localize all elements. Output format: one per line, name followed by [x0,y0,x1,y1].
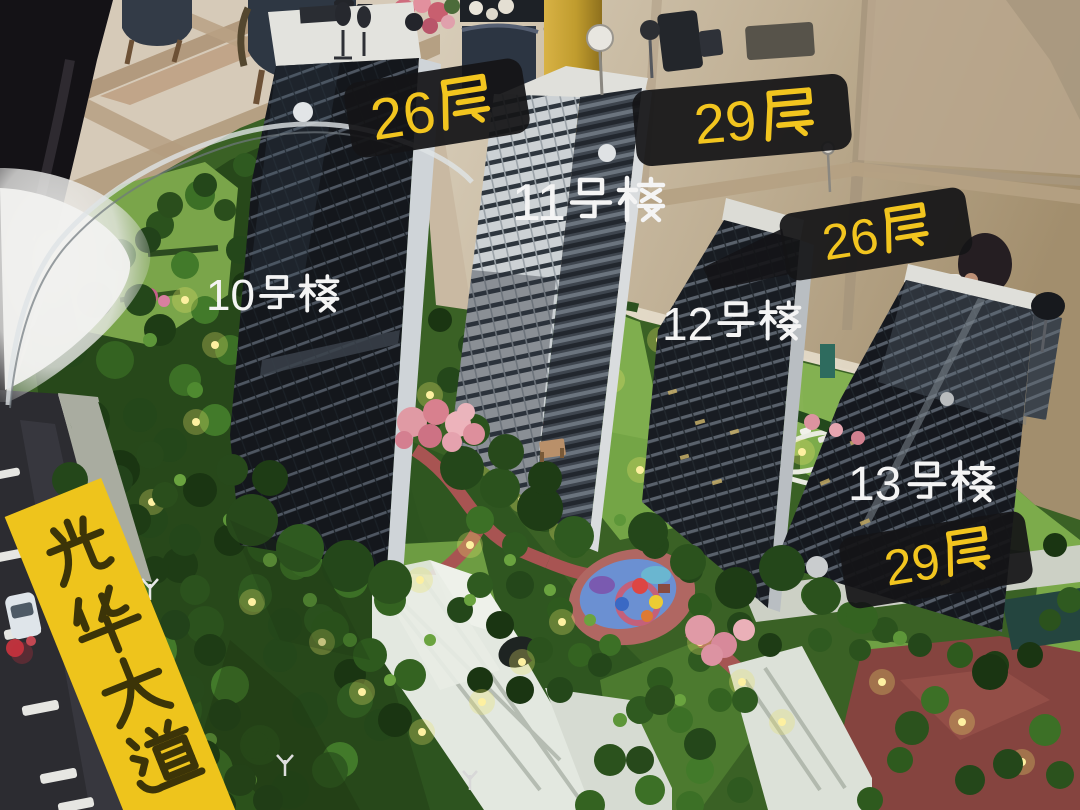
svg-text:11: 11 [512,174,566,232]
svg-text:29: 29 [880,533,944,597]
svg-text:12: 12 [662,298,713,350]
svg-text:29: 29 [691,88,759,156]
svg-text:13: 13 [848,458,901,511]
svg-text:26: 26 [366,79,440,153]
svg-text:10: 10 [206,271,255,320]
svg-text:26: 26 [818,207,882,271]
